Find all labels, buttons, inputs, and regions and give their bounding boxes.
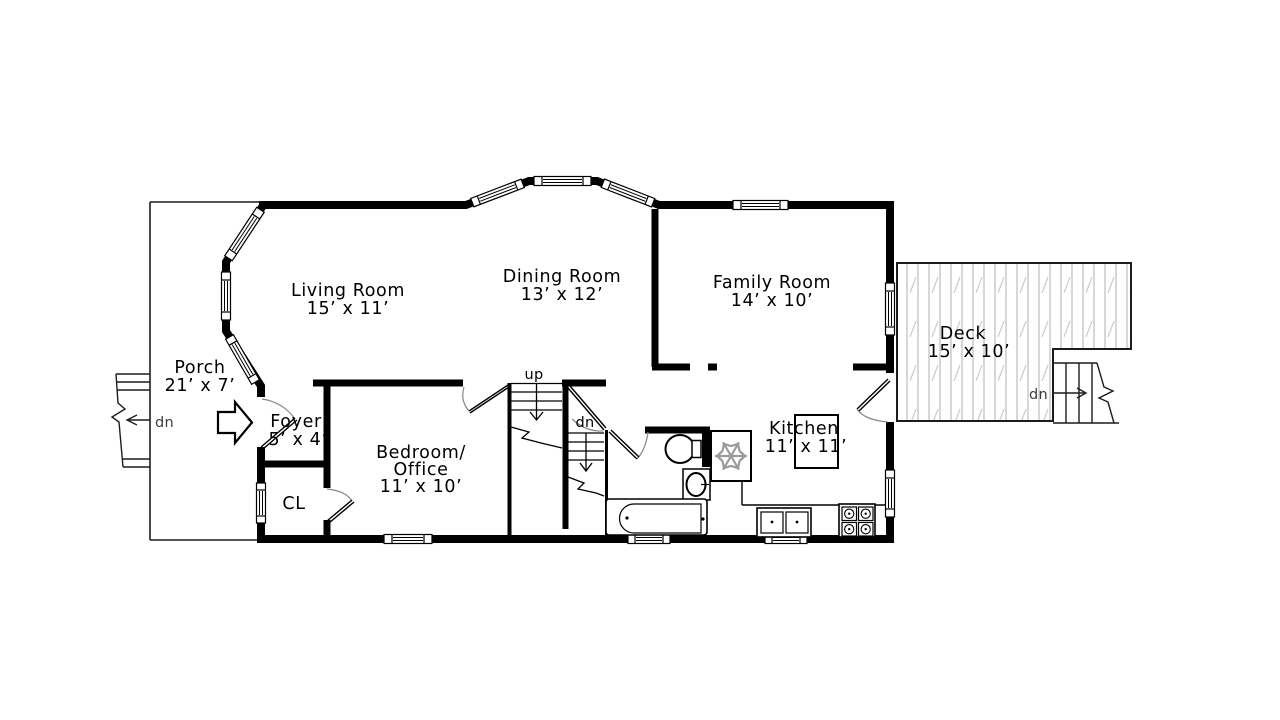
dining-room-label: Dining Room bbox=[503, 267, 622, 287]
closet-label: CL bbox=[282, 494, 305, 514]
stairs-up bbox=[511, 383, 562, 448]
kitchen-label: Kitchen bbox=[769, 419, 839, 439]
entry-arrow-icon bbox=[218, 402, 252, 443]
deck-stairs bbox=[1053, 363, 1119, 423]
stairs-basement-down-label: dn bbox=[576, 415, 595, 431]
window-closet-west bbox=[257, 483, 266, 523]
kitchen-counter bbox=[742, 481, 886, 505]
floor-plan: dn dn bbox=[0, 0, 1280, 720]
family-room-dims: 14’ x 10’ bbox=[731, 291, 814, 311]
window-bay-top bbox=[534, 177, 591, 186]
bedroom-dims: 11’ x 10’ bbox=[380, 477, 463, 497]
interior-walls bbox=[258, 209, 888, 538]
stairs-up-label: up bbox=[525, 367, 544, 383]
window-living-bay-upper bbox=[225, 207, 264, 260]
stove-icon bbox=[839, 504, 875, 537]
porch-down-label: dn bbox=[155, 415, 174, 431]
foyer-label: Foyer bbox=[270, 412, 322, 432]
deck-label: Deck bbox=[940, 324, 987, 344]
toilet-tank bbox=[692, 441, 701, 458]
toilet-icon bbox=[666, 435, 695, 463]
living-room-label: Living Room bbox=[291, 281, 405, 301]
porch-dims: 21’ x 7’ bbox=[165, 376, 236, 396]
door-bedroom bbox=[463, 385, 509, 413]
window-bedroom-south bbox=[384, 535, 432, 544]
window-living-bay-mid bbox=[222, 272, 231, 320]
refrigerator-icon bbox=[711, 431, 751, 481]
window-bay-left bbox=[471, 179, 525, 207]
window-family-north bbox=[733, 201, 788, 210]
window-family-east bbox=[886, 283, 895, 335]
stairs-down-basement bbox=[568, 433, 604, 496]
bathroom-fixtures bbox=[606, 435, 710, 535]
bathtub-icon bbox=[606, 499, 707, 535]
kitchen-sink-icon bbox=[757, 508, 811, 537]
door-closet bbox=[327, 489, 354, 523]
living-room-dims: 15’ x 11’ bbox=[307, 299, 390, 319]
window-bath-south bbox=[628, 535, 670, 544]
kitchen-dims: 11’ x 11’ bbox=[765, 437, 848, 457]
windows bbox=[222, 177, 895, 544]
porch-label: Porch bbox=[174, 358, 225, 378]
deck-dims: 15’ x 10’ bbox=[928, 342, 1011, 362]
door-deck bbox=[857, 379, 890, 422]
bathroom-sink-icon bbox=[683, 469, 710, 500]
family-room-label: Family Room bbox=[713, 273, 831, 293]
dining-room-dims: 13’ x 12’ bbox=[521, 285, 604, 305]
window-bay-right bbox=[601, 179, 655, 207]
foyer-dims: 5’ x 4’ bbox=[268, 430, 327, 450]
window-kitchen-east bbox=[886, 470, 895, 517]
porch-steps bbox=[112, 374, 150, 467]
floor-plan-page: dn dn bbox=[0, 0, 1280, 720]
door-bathroom bbox=[609, 430, 648, 459]
deck-down-label: dn bbox=[1029, 387, 1048, 403]
